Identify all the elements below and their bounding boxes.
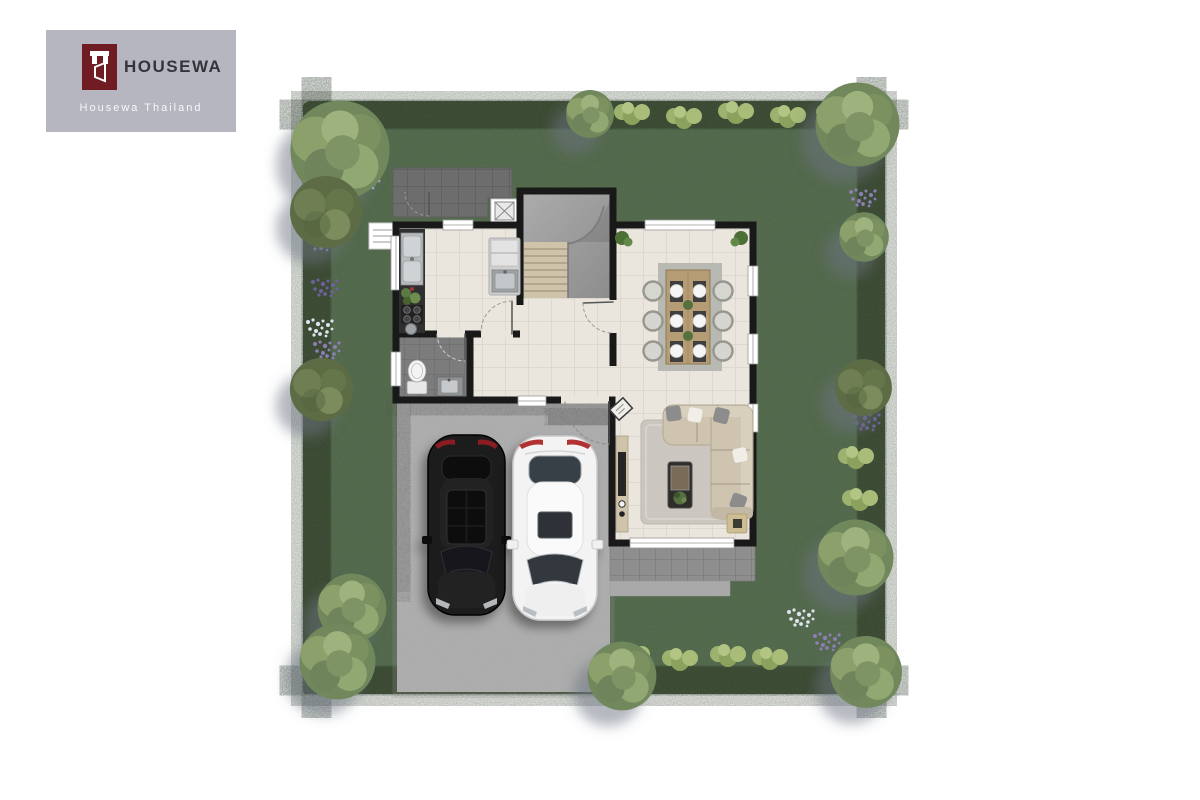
tree — [839, 212, 889, 262]
brand-card: HOUSEWA Housewa Thailand — [46, 30, 236, 132]
gravel-strip-entry — [548, 409, 610, 425]
window — [748, 266, 758, 296]
brand-tagline: Housewa Thailand — [46, 102, 236, 114]
dining-door — [583, 302, 613, 303]
tree — [818, 520, 894, 596]
window — [443, 220, 473, 230]
gravel-strip-left — [397, 400, 410, 592]
window — [518, 396, 546, 406]
tree — [300, 624, 376, 700]
side-table — [727, 514, 747, 533]
window — [748, 334, 758, 364]
tree — [290, 176, 362, 248]
tree — [588, 642, 657, 711]
island-sink — [492, 270, 518, 292]
tree — [816, 83, 900, 167]
tree — [835, 359, 892, 416]
brand-row: HOUSEWA — [46, 44, 236, 90]
housewa-logo-icon — [82, 44, 117, 90]
car-white — [507, 436, 603, 620]
tree — [566, 90, 614, 138]
toilet — [407, 360, 427, 394]
cooktop — [401, 305, 423, 324]
coffee-table — [668, 462, 692, 508]
staircase — [523, 194, 610, 298]
vanity-sink — [437, 377, 463, 396]
tree — [290, 358, 353, 421]
kitchen-island — [489, 238, 520, 295]
car-black — [422, 435, 511, 615]
site-plan-canvas: HOUSEWA Housewa Thailand — [0, 0, 1200, 800]
window — [630, 538, 734, 548]
tree — [830, 636, 902, 708]
terrace-step — [610, 581, 730, 596]
brand-name: HOUSEWA — [124, 57, 222, 77]
kitchen-counter — [399, 229, 425, 335]
tv-console — [616, 436, 628, 532]
prep-sink — [406, 324, 417, 335]
window — [645, 220, 715, 230]
kitchen-sink — [401, 233, 423, 285]
refrigerator — [491, 240, 518, 266]
ac-pad-north — [491, 199, 518, 223]
window — [391, 352, 401, 386]
